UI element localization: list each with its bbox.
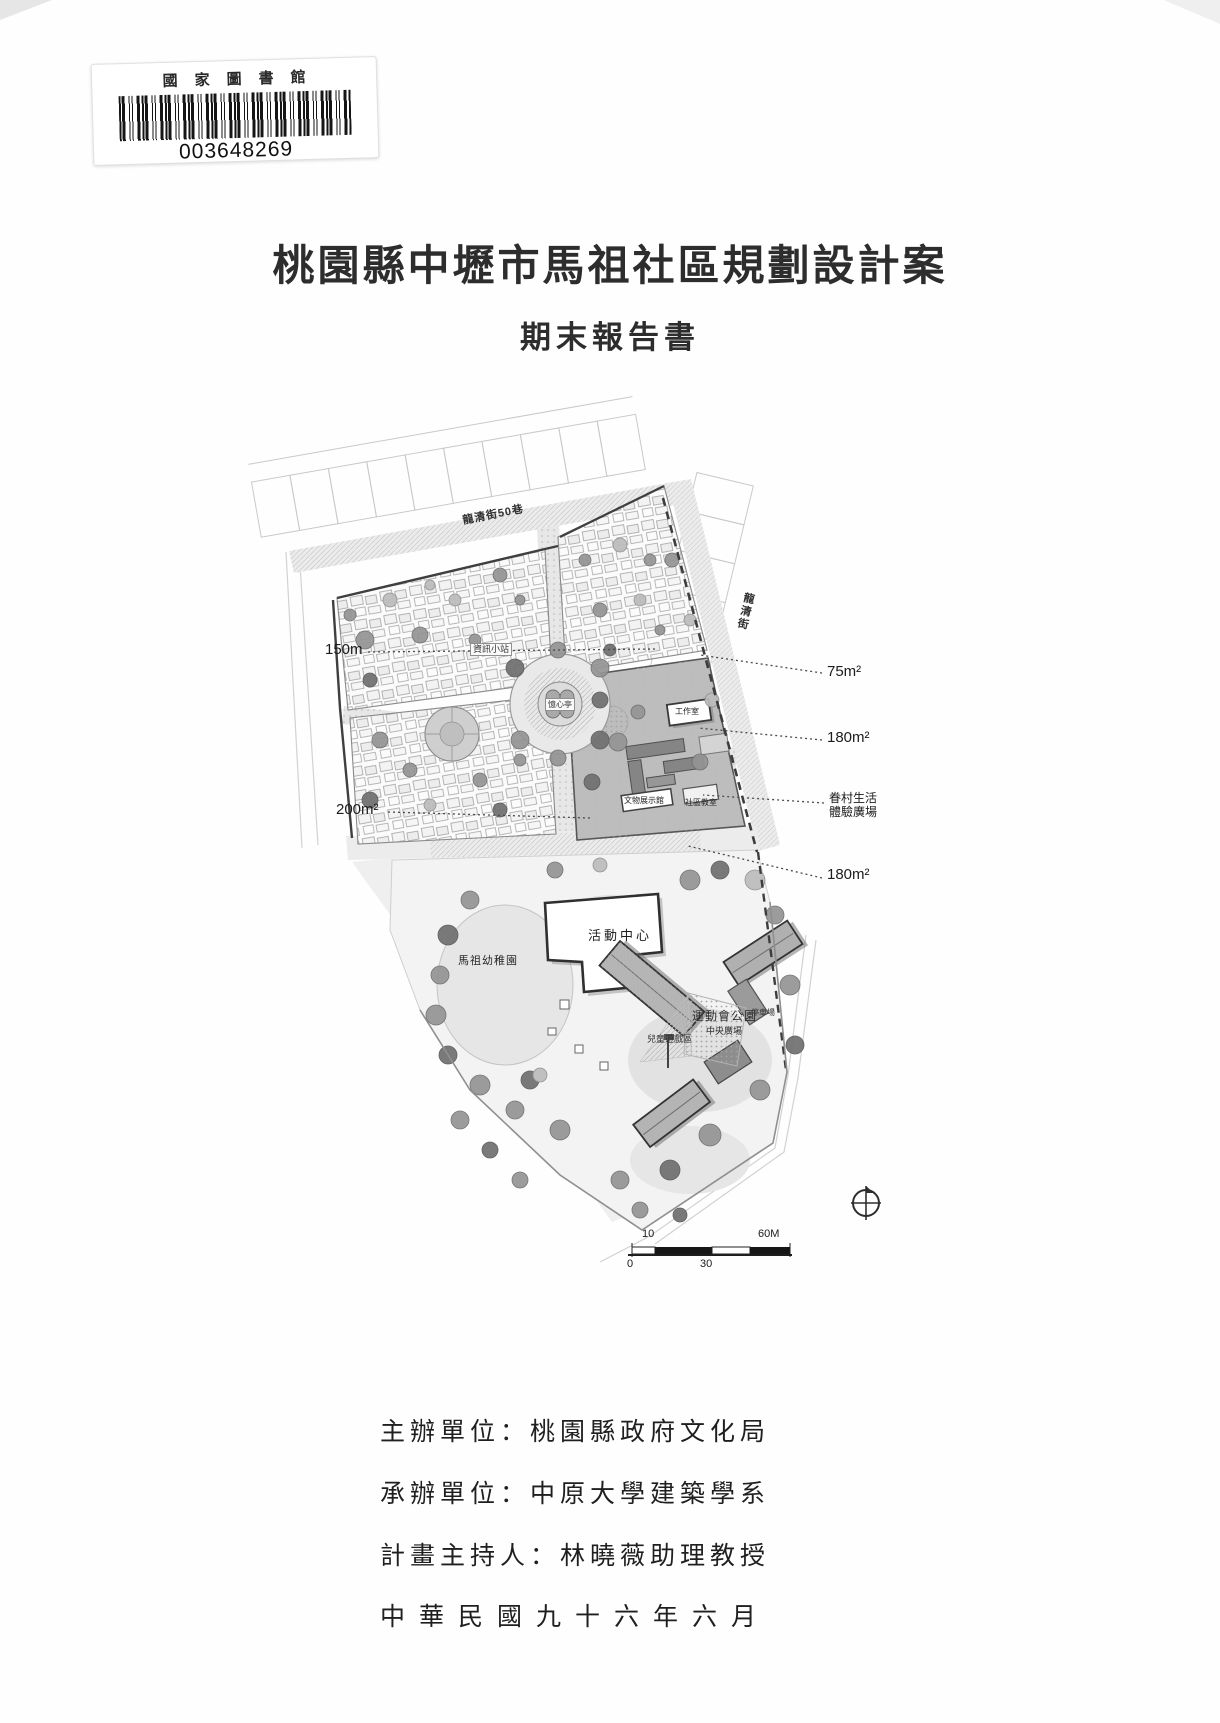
credit-date: 中華民國九十六年六月 bbox=[380, 1597, 770, 1633]
credit-undertaker: 承辦單位：中原大學建築學系 bbox=[380, 1474, 770, 1510]
annotation-juancun-line2: 體驗廣場 bbox=[829, 805, 877, 819]
annotation-180m-upper: 180m² bbox=[827, 729, 870, 746]
annotation-150m: 150m bbox=[325, 641, 363, 658]
place-label-artifact-hall: 文物展示館 bbox=[624, 795, 664, 806]
annotation-200m: 200m² bbox=[336, 801, 379, 818]
scale-label-30: 30 bbox=[700, 1258, 712, 1270]
place-label-classroom: 社區教室 bbox=[685, 797, 717, 808]
place-label-sports-park: 運動會公園 bbox=[692, 1007, 757, 1024]
round-court-feature bbox=[425, 707, 479, 761]
place-label-workshop: 工作室 bbox=[675, 706, 699, 717]
place-label-kindergarten: 馬祖幼稚園 bbox=[458, 952, 518, 968]
scale-label-10: 10 bbox=[642, 1228, 654, 1240]
north-arrow-icon bbox=[851, 1186, 881, 1220]
place-label-central-plaza: 中央廣場 bbox=[706, 1024, 742, 1037]
place-label-activity-center: 活動中心 bbox=[588, 925, 652, 944]
site-plan-drawing bbox=[0, 0, 1220, 1723]
scale-label-0: 0 bbox=[627, 1258, 633, 1270]
annotation-juancun-plaza: 眷村生活 體驗廣場 bbox=[829, 791, 877, 819]
place-label-children-play-area: 兒童遊戲區 bbox=[647, 1032, 692, 1045]
scale-bar bbox=[628, 1243, 792, 1257]
credit-project-leader: 計畫主持人：林曉薇助理教授 bbox=[380, 1536, 770, 1572]
annotation-75m: 75m² bbox=[827, 663, 861, 680]
report-cover-page: 國家圖書館 003648269 桃園縣中壢市馬祖社區規劃設計案 期末報告書 bbox=[0, 0, 1220, 1723]
credit-organizer: 主辦單位：桃園縣政府文化局 bbox=[380, 1412, 770, 1448]
place-label-parking: 停車場 bbox=[751, 1007, 775, 1018]
scale-label-60m: 60M bbox=[758, 1228, 779, 1240]
annotation-juancun-line1: 眷村生活 bbox=[829, 791, 877, 805]
annotation-180m-lower: 180m² bbox=[827, 866, 870, 883]
place-label-info-station: 資訊小站 bbox=[470, 643, 512, 656]
place-label-pavilion: 憶心亭 bbox=[545, 698, 575, 711]
